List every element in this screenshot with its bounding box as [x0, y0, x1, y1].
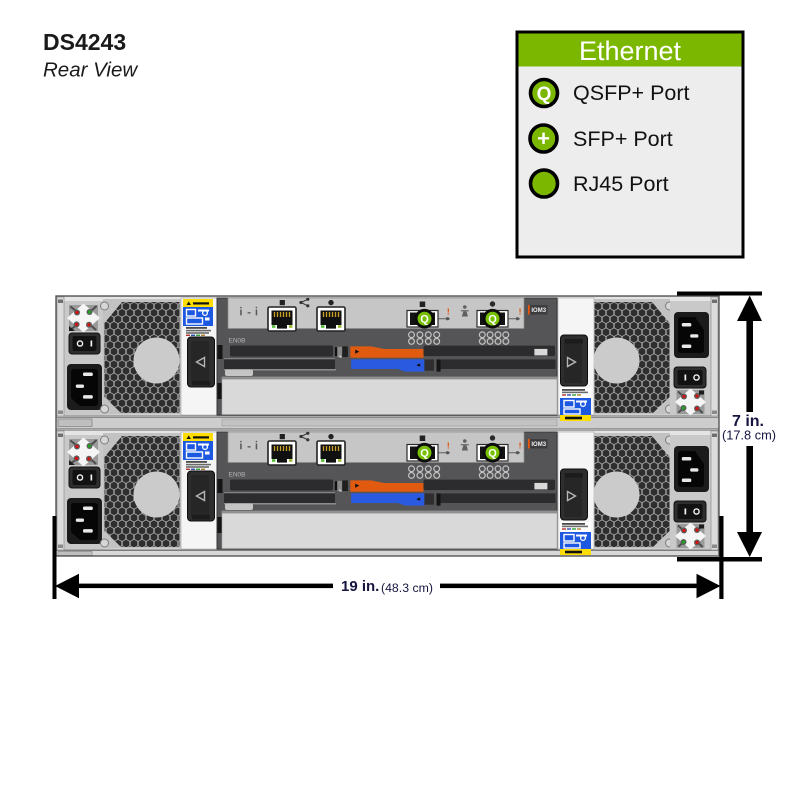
svg-text:+: + [537, 126, 550, 151]
svg-text:Q: Q [420, 314, 429, 326]
svg-text:DS4243: DS4243 [43, 29, 126, 55]
svg-text:!: ! [447, 307, 450, 317]
svg-text:SFP+ Port: SFP+ Port [573, 127, 673, 151]
svg-text:Q: Q [537, 84, 552, 105]
svg-text:Q: Q [488, 314, 497, 326]
svg-text:!: ! [519, 307, 522, 317]
svg-text:(17.8 cm): (17.8 cm) [722, 428, 776, 443]
svg-text:Ethernet: Ethernet [579, 36, 682, 66]
svg-text:IOM3: IOM3 [531, 308, 546, 314]
svg-text:RJ45 Port: RJ45 Port [573, 172, 669, 196]
svg-text:QSFP+ Port: QSFP+ Port [573, 81, 690, 105]
svg-text:EN0B: EN0B [229, 338, 246, 345]
svg-text:19 in.: 19 in. [341, 578, 379, 595]
svg-text:(48.3 cm): (48.3 cm) [381, 581, 433, 595]
svg-text:Rear View: Rear View [43, 59, 138, 82]
